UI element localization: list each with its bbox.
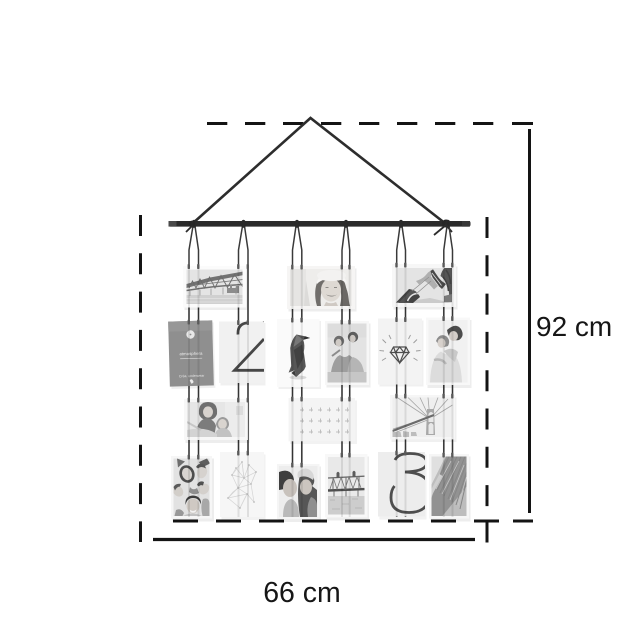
svg-text:92 cm: 92 cm: [536, 311, 612, 342]
svg-text:Créa. underwear: Créa. underwear: [179, 374, 205, 379]
svg-text:atmosphera: atmosphera: [179, 351, 203, 357]
svg-text:66 cm: 66 cm: [263, 577, 341, 609]
